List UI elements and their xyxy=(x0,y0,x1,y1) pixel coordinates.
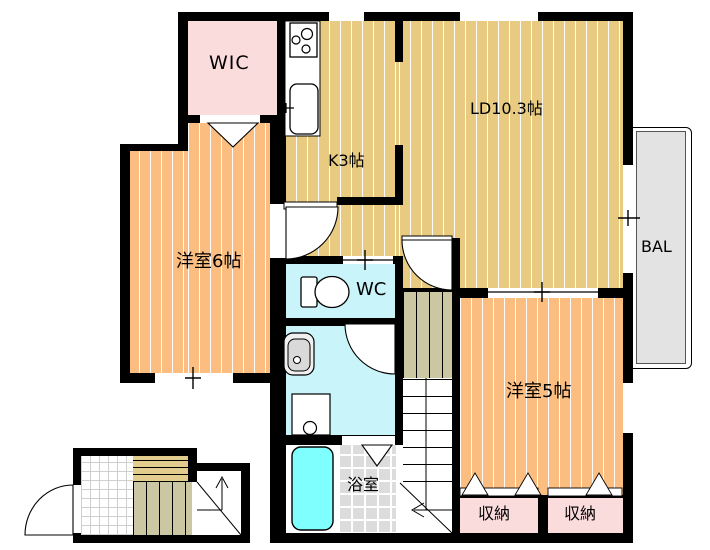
stairs-door-swing xyxy=(402,236,452,290)
bedroom5-label: 洋室5帖 xyxy=(506,383,571,401)
bedroom6-door-swing xyxy=(284,202,338,259)
washroom-door-swing xyxy=(345,324,395,374)
storage-left-label: 収納 xyxy=(478,506,510,522)
washing-machine-icon xyxy=(292,394,330,435)
stove-icon xyxy=(290,23,317,57)
bedroom6-label: 洋室6帖 xyxy=(176,253,241,271)
bathroom-door-triangle xyxy=(362,445,392,466)
toilet-icon xyxy=(301,277,349,308)
storage-doors xyxy=(460,473,622,496)
storage-right-label: 収納 xyxy=(564,506,596,522)
kitchen-label: K3帖 xyxy=(328,153,365,169)
entry-staircase-detail xyxy=(197,477,241,535)
bathtub-icon xyxy=(292,447,333,530)
bathroom-label: 浴室 xyxy=(347,477,379,493)
entrance-door-swing xyxy=(25,485,73,535)
balcony-label: BAL xyxy=(641,239,672,255)
toilet-label: WC xyxy=(356,281,386,299)
living-dining-label: LD10.3帖 xyxy=(470,101,543,117)
wic-door-triangle xyxy=(208,123,258,147)
staircase-detail xyxy=(400,378,452,533)
washbasin-icon xyxy=(284,333,314,375)
floorplan: WIC K3帖 LD10.3帖 洋室6帖 WC 浴室 洋室5帖 収納 収納 BA… xyxy=(0,0,710,550)
wic-label: WIC xyxy=(209,54,250,73)
